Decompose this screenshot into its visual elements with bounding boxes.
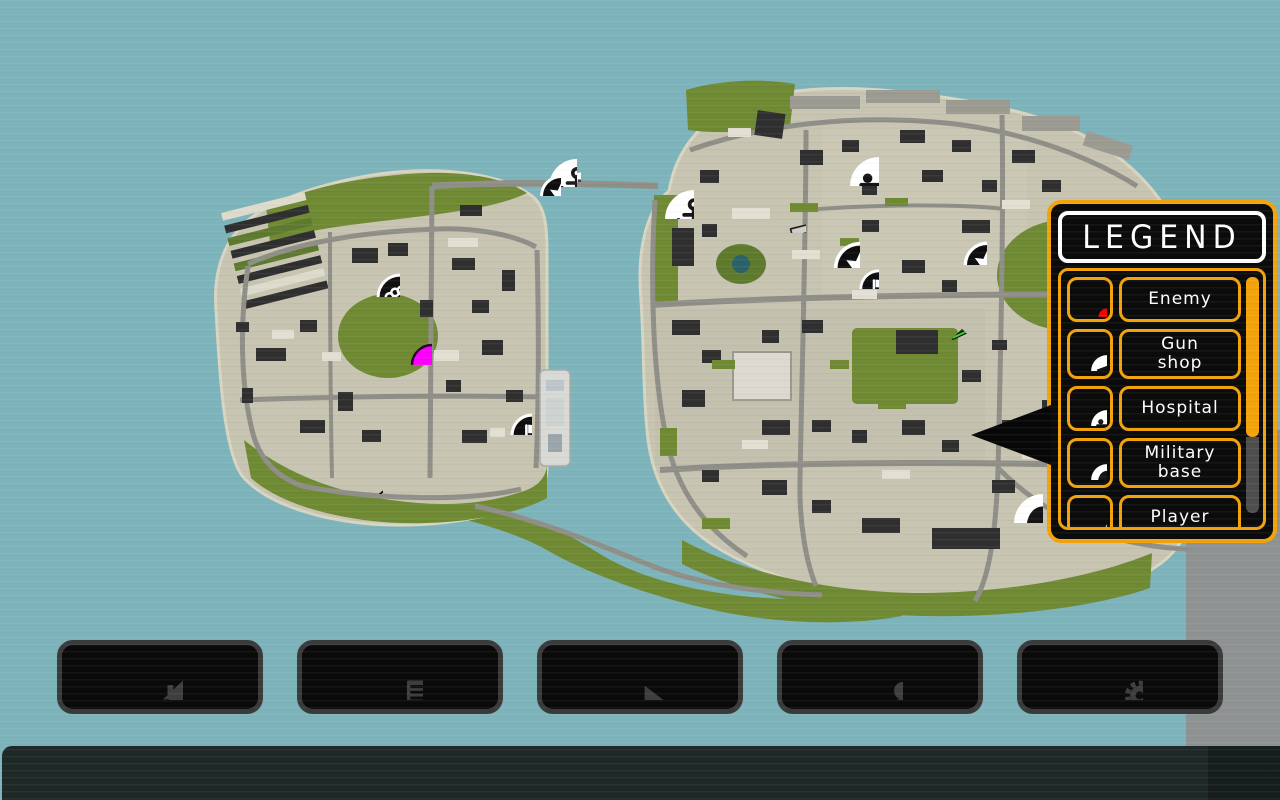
enemy-dot-icon [1067,277,1113,322]
settings-button[interactable] [1017,640,1223,714]
bottom-toolbar [0,640,1280,714]
legend-scrollbar-thumb[interactable] [1246,277,1259,437]
gun-badge-icon [1067,329,1113,379]
player-arrow-outline-icon [1067,495,1113,530]
play-pause-button[interactable] [537,640,743,714]
legend-item-label: Player [1119,495,1241,530]
game-map-screen: LEGEND EnemyGun shopHospitalMilitary bas… [0,0,1280,800]
legend-scrollbar[interactable] [1246,277,1259,521]
hospital-badge-icon [1067,386,1113,431]
profile-button[interactable] [777,640,983,714]
legend-title-text: LEGEND [1082,218,1241,256]
legend-panel: LEGEND EnemyGun shopHospitalMilitary bas… [1047,200,1277,543]
home-icon [137,654,183,700]
legend-scrollbar-track [1246,437,1259,513]
legend-items: EnemyGun shopHospitalMilitary basePlayer [1067,277,1241,521]
helmet-badge-icon [1067,438,1113,488]
legend-item-enemy[interactable]: Enemy [1067,277,1241,322]
person-icon [857,654,903,700]
legend-item-player[interactable]: Player [1067,495,1241,530]
bottom-bar [2,746,1280,800]
channel-ship [540,370,570,466]
legend-item-label: Gun shop [1119,329,1241,379]
legend-item-label: Military base [1119,438,1241,488]
legend-collapse-arrow-icon[interactable] [971,405,1051,465]
legend-item-hospital[interactable]: Hospital [1067,386,1241,431]
document-check-icon [377,654,423,700]
legend-item-gun-shop[interactable]: Gun shop [1067,329,1241,379]
legend-item-label: Enemy [1119,277,1241,322]
legend-item-military-base[interactable]: Military base [1067,438,1241,488]
gears-icon [1097,654,1143,700]
quests-button[interactable] [297,640,503,714]
bottom-bar-right-segment [1208,746,1280,800]
home-button[interactable] [57,640,263,714]
legend-body: EnemyGun shopHospitalMilitary basePlayer [1058,268,1266,530]
legend-item-label: Hospital [1119,386,1241,431]
legend-title: LEGEND [1058,211,1266,263]
play-pause-icon [617,654,663,700]
